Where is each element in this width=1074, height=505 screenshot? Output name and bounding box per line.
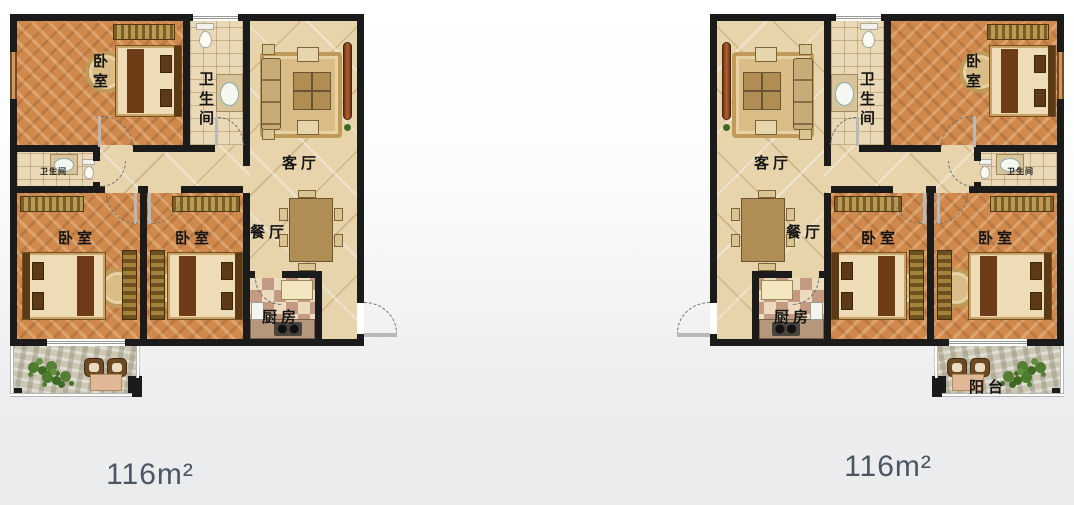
closet-panel <box>122 250 137 320</box>
window <box>836 14 881 21</box>
wall <box>710 14 717 303</box>
wall <box>357 14 364 303</box>
coffee-table <box>743 72 781 110</box>
pillow <box>32 292 44 310</box>
chair-seat <box>952 363 962 372</box>
window <box>193 14 238 21</box>
bed-blanket <box>980 256 997 316</box>
label-bedroom-middle: 卧室 <box>861 227 899 248</box>
plant-icon <box>723 124 730 131</box>
wall <box>819 271 824 278</box>
chair-seat <box>112 363 122 372</box>
wall <box>884 14 891 152</box>
wall <box>974 145 1057 152</box>
pillow <box>160 89 172 107</box>
balcony-table <box>90 374 122 391</box>
armchair <box>297 47 319 62</box>
kitchen-cabinet <box>761 280 793 300</box>
plant-icon <box>344 124 351 131</box>
label-bathroom-small: 卫生间 <box>1007 166 1034 177</box>
wall <box>891 145 941 152</box>
bed <box>115 45 182 117</box>
entry-door-arc <box>677 302 710 333</box>
dining-chair <box>334 234 343 247</box>
bed-headboard <box>1048 46 1055 116</box>
wall <box>831 186 893 193</box>
side-table <box>262 129 275 140</box>
armchair <box>297 120 319 135</box>
chair-seat <box>975 363 985 372</box>
sofa <box>793 58 813 130</box>
pillow <box>1034 55 1046 73</box>
bed-headboard <box>832 253 839 319</box>
toilet-icon <box>860 23 878 30</box>
dining-chair <box>298 263 316 271</box>
label-dining-room: 餐厅 <box>786 221 824 242</box>
floor-plan-right[interactable]: 卧室 卫生间 客厅 卫生间 卧室 卧室 餐厅 厨房 阳台 <box>708 14 1064 400</box>
wall <box>974 152 981 161</box>
sink-icon <box>220 82 239 106</box>
wall <box>183 14 190 152</box>
closet-panel <box>909 250 924 320</box>
sink-icon <box>835 82 854 106</box>
pillow <box>221 262 233 280</box>
area-label-right: 116m² <box>798 450 978 484</box>
wall <box>1027 339 1064 346</box>
label-bedroom-top: 卧室 <box>91 52 110 91</box>
bed <box>167 252 243 320</box>
window <box>1057 52 1064 99</box>
wall <box>859 145 891 152</box>
dining-table <box>741 198 785 262</box>
wall <box>181 186 243 193</box>
toilet-bowl <box>980 166 990 179</box>
wall <box>183 145 215 152</box>
label-bathroom-main: 卫生间 <box>858 70 877 129</box>
label-kitchen: 厨房 <box>262 306 300 327</box>
sofa <box>261 58 281 130</box>
dining-table <box>289 198 333 262</box>
bed <box>968 252 1052 320</box>
bed-blanket <box>77 256 94 316</box>
entry-door-opening <box>357 303 364 334</box>
toilet-icon <box>196 23 214 30</box>
bed-blanket <box>1001 49 1018 113</box>
coffee-table <box>293 72 331 110</box>
bed-blanket <box>179 256 196 316</box>
closet-panel <box>150 250 165 320</box>
balcony-railing <box>10 393 132 397</box>
armchair <box>755 47 777 62</box>
wall <box>138 186 148 193</box>
wardrobe <box>172 196 240 212</box>
dining-chair <box>786 208 795 221</box>
dining-chair <box>758 263 776 271</box>
pillow <box>221 292 233 310</box>
dining-chair <box>334 208 343 221</box>
area-label-left: 116m² <box>60 458 240 492</box>
side-table <box>262 44 275 55</box>
wall <box>133 145 183 152</box>
pillow <box>1030 292 1042 310</box>
toilet-bowl <box>862 31 875 48</box>
label-balcony: 阳台 <box>955 376 1021 397</box>
plant-icon <box>28 362 39 373</box>
window <box>10 52 17 99</box>
floor-plan-page: 卧室 卫生间 客厅 卫生间 卧室 卧室 餐厅 厨房 <box>0 0 1074 505</box>
plant-icon <box>1035 362 1046 373</box>
bed-headboard <box>1044 253 1051 319</box>
wall <box>10 339 47 346</box>
side-table <box>799 44 812 55</box>
bed-blanket <box>127 49 144 113</box>
wall <box>125 339 364 346</box>
wall <box>926 186 936 193</box>
pillow <box>1034 89 1046 107</box>
wall <box>140 193 147 339</box>
door-leaf <box>973 116 976 147</box>
wall <box>315 271 322 339</box>
pillow <box>841 292 853 310</box>
wall <box>250 271 255 278</box>
bed-headboard <box>174 46 181 116</box>
balcony-railing <box>1060 346 1064 393</box>
closet-panel <box>937 250 952 320</box>
label-bedroom-left: 卧室 <box>58 227 96 248</box>
label-dining-room: 餐厅 <box>250 221 288 242</box>
plant-icon <box>1021 372 1032 383</box>
label-bedroom-left: 卧室 <box>978 227 1016 248</box>
dining-chair <box>731 208 740 221</box>
balcony-railing <box>136 346 139 378</box>
balcony-door-window <box>949 339 1027 346</box>
armchair <box>755 120 777 135</box>
toilet-bowl <box>199 31 212 48</box>
bed-blanket <box>878 256 895 316</box>
wall <box>243 193 250 339</box>
wall <box>927 193 934 339</box>
label-bathroom-main: 卫生间 <box>197 70 216 129</box>
wall <box>17 145 100 152</box>
bed-headboard <box>235 253 242 319</box>
pillow <box>841 262 853 280</box>
bed-headboard <box>23 253 30 319</box>
entry-door-leaf <box>364 333 397 337</box>
wall <box>752 271 759 339</box>
plant-icon <box>42 372 53 383</box>
bed <box>989 45 1056 117</box>
wall <box>243 14 250 166</box>
label-living-room: 客厅 <box>282 152 320 173</box>
dining-chair <box>758 190 776 198</box>
label-kitchen: 厨房 <box>774 306 812 327</box>
bed <box>831 252 907 320</box>
label-bathroom-small: 卫生间 <box>40 166 67 177</box>
kitchen-cabinet <box>281 280 313 300</box>
chair-seat <box>89 363 99 372</box>
wall <box>17 186 105 193</box>
label-bedroom-top: 卧室 <box>964 52 983 91</box>
entry-door-opening <box>710 303 717 334</box>
dining-chair <box>279 208 288 221</box>
entry-door-arc <box>364 302 397 333</box>
wall <box>824 193 831 339</box>
dining-chair <box>298 190 316 198</box>
wall <box>969 186 1057 193</box>
radiator <box>343 42 352 120</box>
pillow <box>32 262 44 280</box>
balcony-railing <box>10 346 14 393</box>
toilet-bowl <box>84 166 94 179</box>
wardrobe <box>113 24 175 40</box>
balcony-railing <box>935 346 938 378</box>
label-bedroom-middle: 卧室 <box>175 227 213 248</box>
entry-door-leaf <box>677 333 710 337</box>
door-leaf <box>923 193 926 224</box>
side-table <box>799 129 812 140</box>
wardrobe <box>987 24 1049 40</box>
label-living-room: 客厅 <box>754 152 792 173</box>
bed <box>22 252 106 320</box>
dining-chair <box>731 234 740 247</box>
wall <box>93 152 100 161</box>
wall <box>710 339 949 346</box>
wardrobe <box>990 196 1054 212</box>
radiator <box>722 42 731 120</box>
pillow <box>160 55 172 73</box>
pillow <box>1030 262 1042 280</box>
floor-plan-left[interactable]: 卧室 卫生间 客厅 卫生间 卧室 卧室 餐厅 厨房 <box>10 14 366 400</box>
balcony-door-window <box>47 339 125 346</box>
wardrobe <box>20 196 84 212</box>
